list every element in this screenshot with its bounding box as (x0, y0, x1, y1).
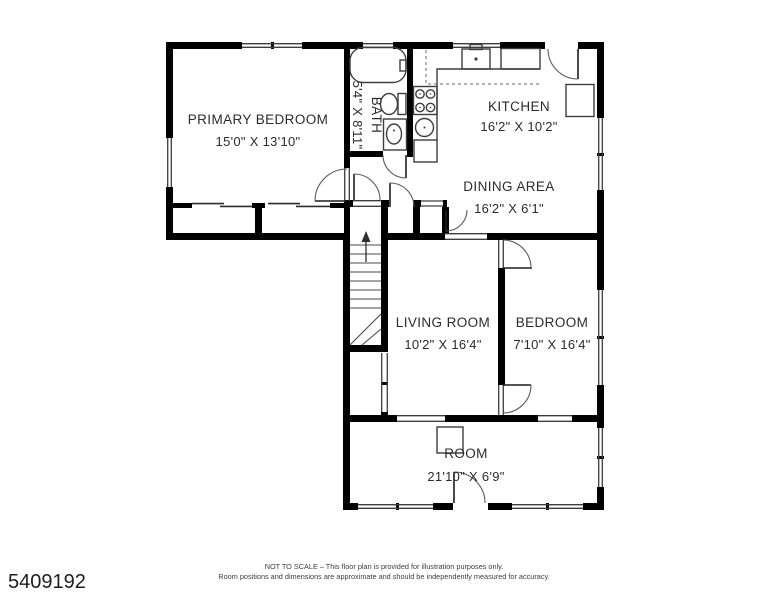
footer-disclaimer-line1: NOT TO SCALE – This floor plan is provid… (265, 562, 504, 571)
room-dims-primary-bedroom: 15'0" X 13'10" (216, 134, 301, 149)
room-dims-kitchen: 16'2" X 10'2" (480, 119, 557, 134)
room-label-bedroom: BEDROOM (516, 315, 589, 330)
room-dims-living-room: 10'2" X 16'4" (404, 337, 481, 352)
room-dims-bath: 5'4" X 8'11" (350, 81, 365, 150)
room-dims-room: 21'10" X 6'9" (427, 469, 504, 484)
room-label-kitchen: KITCHEN (488, 99, 550, 114)
room-label-bath: BATH (369, 97, 384, 134)
footer-disclaimer-line2: Room positions and dimensions are approx… (218, 572, 549, 581)
floor-plan-canvas: PRIMARY BEDROOM 15'0" X 13'10" BATH 5'4"… (0, 0, 768, 594)
room-label-room: ROOM (444, 446, 488, 461)
room-dims-dining-area: 16'2" X 6'1" (474, 201, 544, 216)
room-label-living-room: LIVING ROOM (396, 315, 490, 330)
room-dims-bedroom: 7'10" X 16'4" (513, 337, 590, 352)
floor-plan-page: PRIMARY BEDROOM 15'0" X 13'10" BATH 5'4"… (0, 0, 768, 594)
room-label-dining-area: DINING AREA (463, 179, 554, 194)
plan-id-number: 5409192 (8, 571, 86, 593)
room-label-primary-bedroom: PRIMARY BEDROOM (188, 112, 329, 127)
